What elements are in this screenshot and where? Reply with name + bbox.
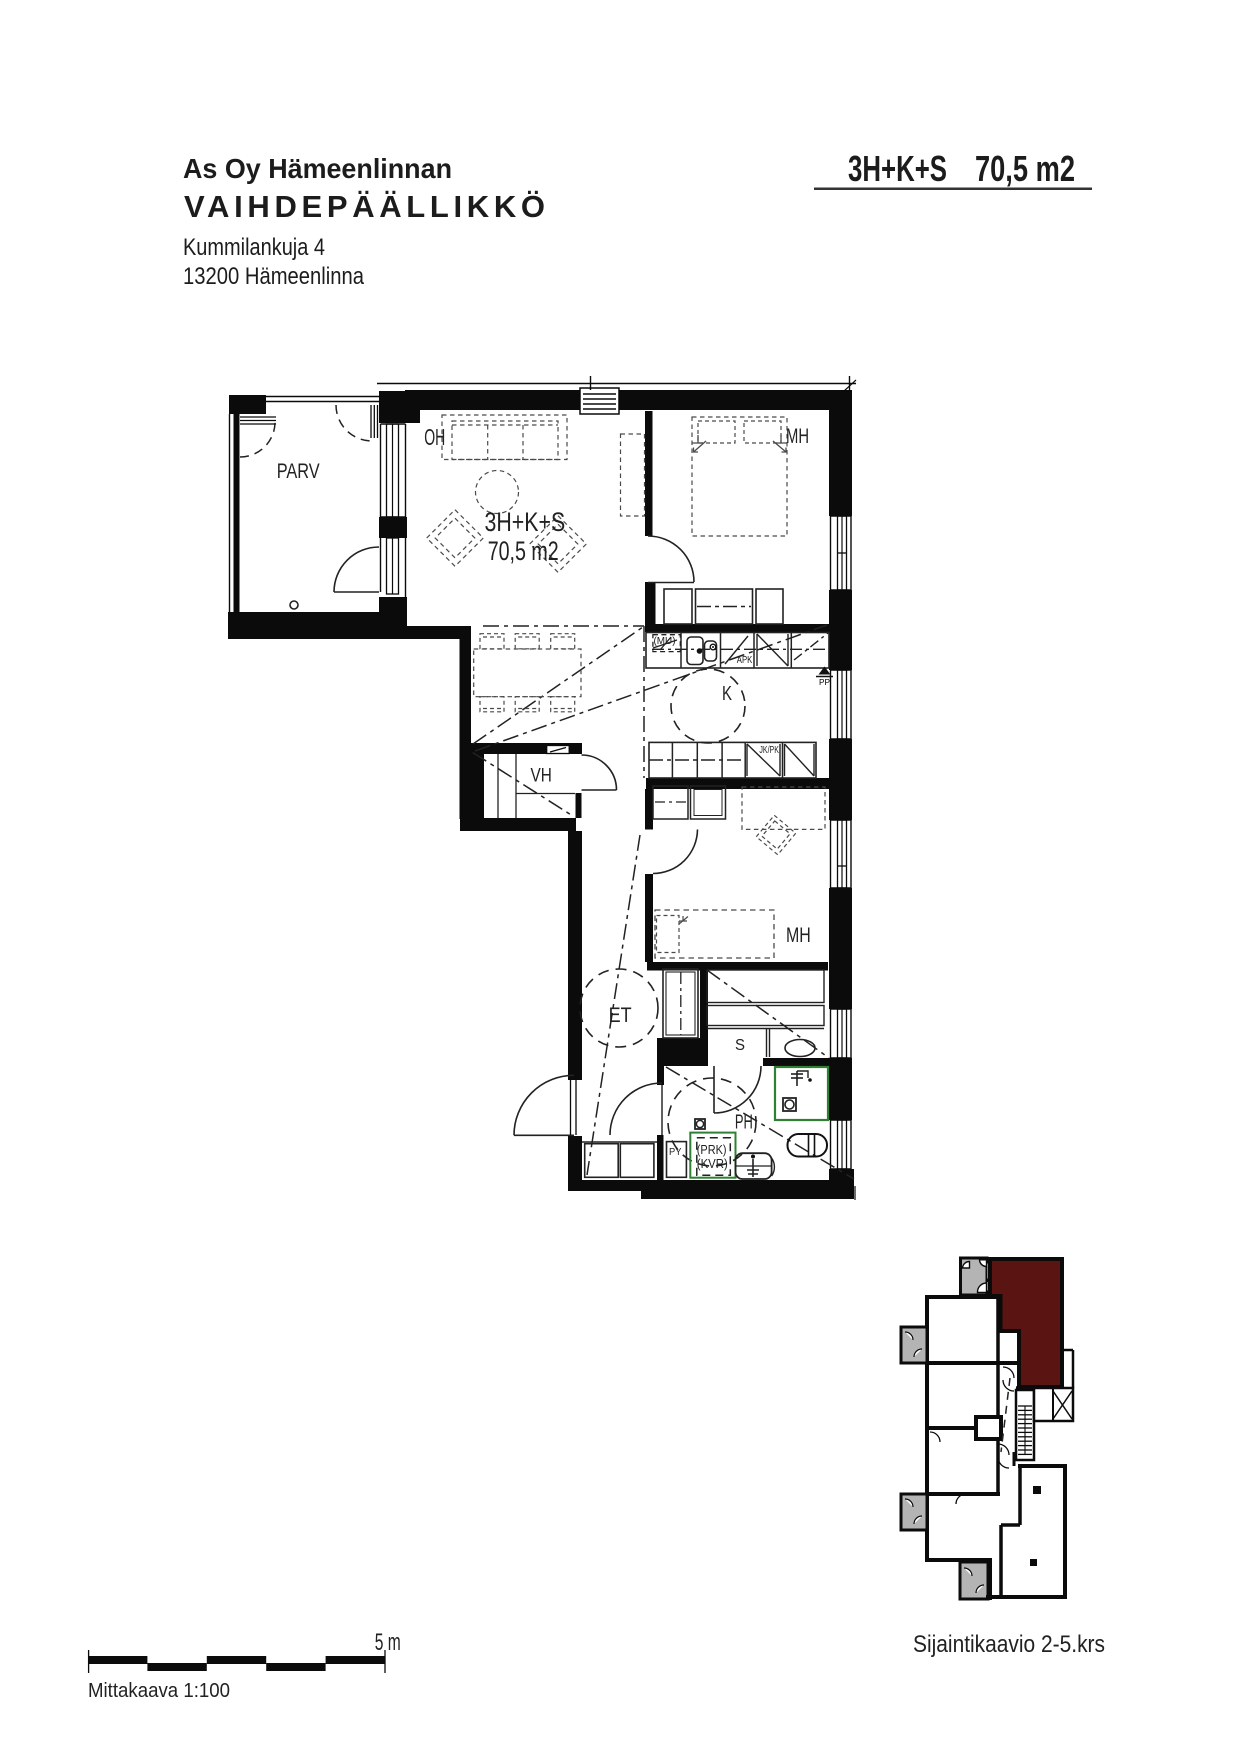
svg-text:ET: ET: [609, 1004, 632, 1027]
svg-text:Mittakaava 1:100: Mittakaava 1:100: [88, 1679, 230, 1702]
svg-text:OH: OH: [424, 424, 445, 450]
svg-text:S: S: [735, 1037, 745, 1054]
svg-text:As Oy Hämeenlinnan: As Oy Hämeenlinnan: [183, 153, 452, 184]
svg-text:(PRK): (PRK): [697, 1142, 727, 1157]
svg-text:Kummilankuja 4: Kummilankuja 4: [183, 234, 325, 261]
svg-text:MH: MH: [786, 924, 811, 947]
svg-text:PARV: PARV: [277, 459, 320, 483]
svg-text:K: K: [722, 683, 732, 705]
svg-text:3H+K+S: 3H+K+S: [485, 507, 566, 537]
svg-text:(KVR): (KVR): [697, 1156, 728, 1171]
svg-text:PH: PH: [735, 1110, 753, 1133]
svg-text:70,5 m2: 70,5 m2: [488, 536, 559, 566]
svg-text:VH: VH: [531, 764, 552, 786]
svg-text:3H+K+S: 3H+K+S: [848, 148, 947, 189]
svg-text:PY: PY: [669, 1147, 682, 1158]
svg-text:PP: PP: [819, 677, 830, 687]
svg-text:70,5 m2: 70,5 m2: [975, 148, 1075, 189]
svg-text:(MU): (MU): [654, 636, 676, 647]
svg-text:13200 Hämeenlinna: 13200 Hämeenlinna: [183, 263, 364, 290]
svg-text:MH: MH: [786, 425, 809, 448]
svg-text:JK/PK: JK/PK: [759, 745, 779, 756]
svg-text:APK: APK: [737, 655, 753, 666]
svg-text:Sijaintikaavio 2-5.krs: Sijaintikaavio 2-5.krs: [913, 1631, 1105, 1658]
svg-text:5 m: 5 m: [375, 1629, 401, 1656]
